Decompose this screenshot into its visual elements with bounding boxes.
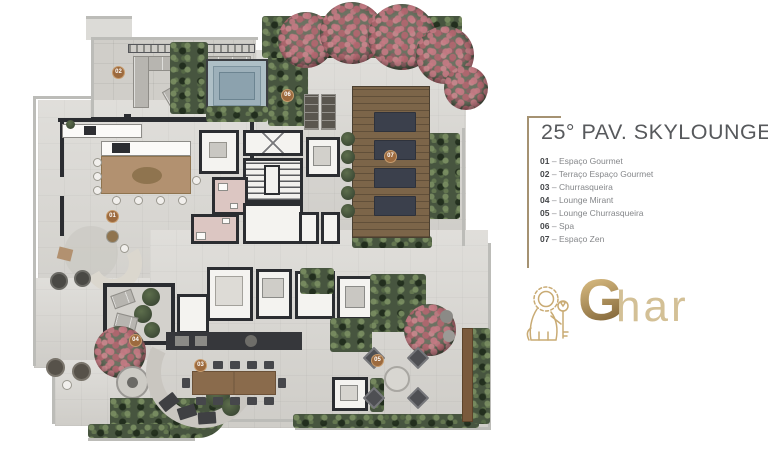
stool [178,196,187,205]
round-chair [74,270,91,287]
area-badge-07: 07 [384,150,397,163]
area-badge-03: 03 [194,359,207,372]
sink [222,218,230,224]
bbq-item [175,336,189,346]
chair [230,397,240,405]
stool [112,196,121,205]
wall-room01-left2 [60,196,64,236]
wall-room01-top [58,118,198,122]
chair [213,361,223,369]
pool-water [219,72,255,100]
bush [341,204,355,218]
zen-mat [374,168,416,188]
legend-item-number: 02 [540,169,549,179]
sink [230,203,238,209]
skylounge-floorplan-page: 01 02 03 04 05 06 07 25° PAV. SKYLOUNGE … [0,0,768,468]
legend-item: 01 – Espaço Gourmet [540,156,623,166]
spa-lounger [321,94,336,130]
legend-item-label: Spa [559,221,574,231]
core-top-hedge [206,106,268,122]
legend-item-label: Terraço Espaço Gourmet [559,169,653,179]
area-badge-05: 05 [371,354,384,367]
legend-dash: – [552,169,557,179]
stair-core [264,165,280,195]
bbq-table [192,371,276,395]
stool [192,176,201,185]
deck-right-hedge [428,133,460,219]
round-table [384,366,410,392]
planter-plant [142,288,160,306]
area-badge-04: 04 [129,334,142,347]
elevator-shaft [243,130,303,156]
legend-item-number: 05 [540,208,549,218]
cooktop [112,143,130,153]
bbq-item [195,336,207,346]
service-room [299,212,319,244]
chair [247,361,257,369]
spa-garden-left [170,42,208,114]
chair [196,397,206,405]
page-title: 25° PAV. SKYLOUNGE [541,120,768,145]
legend-item: 04 – Lounge Mirant [540,195,613,205]
toilet [218,183,228,191]
area-badge-02: 02 [112,66,125,79]
legend-dash: – [552,156,557,166]
zen-mat [374,112,416,132]
kitchen-appliance [84,126,96,135]
bush [341,186,355,200]
service-room [321,212,340,244]
legend-item-label: Lounge Churrasqueira [559,208,644,218]
legend-item-number: 06 [540,221,549,231]
wc-fixture [340,385,358,401]
round-chair [72,362,91,381]
stool [93,186,102,195]
legend-item-label: Espaço Gourmet [559,156,623,166]
spa-lounger [304,94,319,130]
legend-dash: – [552,234,557,244]
counter-plant [66,120,75,129]
lion-with-key-icon [524,282,582,344]
chair [264,361,274,369]
legend-item: 07 – Espaço Zen [540,234,604,244]
legend-item: 03 – Churrasqueira [540,182,613,192]
chair [213,397,223,405]
legend-item-label: Lounge Mirant [559,195,613,205]
zen-mat [374,196,416,216]
elevator-car [313,146,331,166]
brand-logo: G har [522,272,722,352]
shower-tray [262,278,284,298]
logo-text: har [616,285,689,329]
chair [278,378,286,388]
legend-item: 05 – Lounge Churrasqueira [540,208,644,218]
side-table [120,244,129,253]
flowering-tree [444,66,488,110]
legend-dash: – [552,208,557,218]
terrace-sofa-corner [133,56,149,108]
stool [93,158,102,167]
boundary-right-upper [462,128,465,246]
legend-dash: – [552,195,557,205]
bbq-grill [245,335,257,347]
legend-item: 06 – Spa [540,221,574,231]
area-badge-01: 01 [106,210,119,223]
core-corridor [243,203,303,244]
mid-garden2 [330,318,372,352]
legend-item-label: Churrasqueira [559,182,613,192]
round-chair [50,272,68,290]
toilet [196,232,206,240]
legend-dash: – [552,182,557,192]
legend-item-label: Espaço Zen [559,234,604,244]
hedge-right [470,328,490,424]
boundary-left [33,98,36,366]
sauna-bench [215,276,243,306]
stool [134,196,143,205]
side-table [106,230,119,243]
bush [341,132,355,146]
info-panel: 25° PAV. SKYLOUNGE 01 – Espaço Gourmet 0… [520,108,765,278]
storage-room [177,294,209,334]
stool [93,172,102,181]
hedge-bottom [293,414,479,428]
elevator-car [345,286,365,308]
hedge-bottomleft [88,424,170,438]
round-chair [46,358,65,377]
boundary-terrace-top [91,37,258,40]
bush [341,168,355,182]
legend-item-number: 03 [540,182,549,192]
area-badge-06: 06 [281,89,294,102]
chair [230,361,240,369]
bench-cushion [198,411,217,424]
table-centerpiece [132,167,162,184]
stool [156,196,165,205]
legend-item-number: 04 [540,195,549,205]
chair [264,397,274,405]
chair [247,397,257,405]
legend-dash: – [552,221,557,231]
fire-pit-center [127,377,138,388]
boulder [443,330,455,342]
legend-item: 02 – Terraço Espaço Gourmet [540,169,653,179]
bush [341,150,355,164]
boundary-bottomleft-hedgeedge [88,438,195,441]
legend-item-number: 07 [540,234,549,244]
legend-item-number: 01 [540,156,549,166]
boundary-topleft [33,96,93,99]
lobby-chair [209,142,227,158]
mid-garden3 [300,268,334,294]
chair [182,378,190,388]
side-table [62,380,72,390]
boundary-terrace-left [91,37,94,117]
boulder [440,310,453,323]
wood-bench [462,328,473,422]
